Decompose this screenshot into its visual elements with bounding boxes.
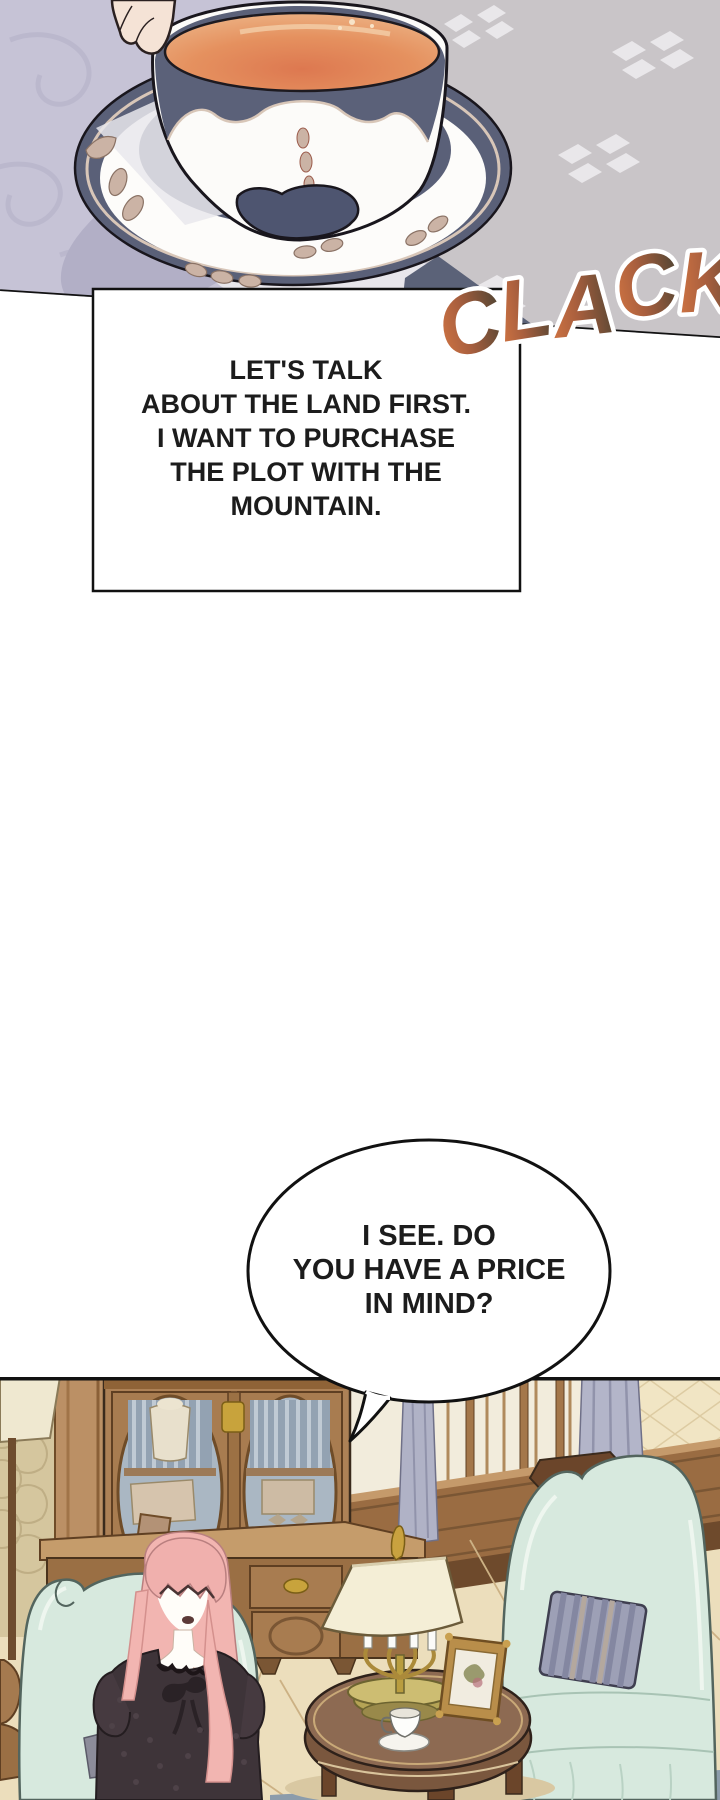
svg-text:LET'S TALK: LET'S TALK <box>230 355 383 385</box>
svg-text:K: K <box>676 232 720 331</box>
svg-text:A: A <box>546 255 620 357</box>
svg-text:ABOUT THE LAND FIRST.: ABOUT THE LAND FIRST. <box>141 389 471 419</box>
svg-text:I WANT TO PURCHASE: I WANT TO PURCHASE <box>157 423 455 453</box>
svg-text:IN MIND?: IN MIND? <box>365 1288 494 1320</box>
svg-text:MOUNTAIN.: MOUNTAIN. <box>231 491 382 521</box>
svg-text:THE PLOT WITH THE: THE PLOT WITH THE <box>170 457 441 487</box>
svg-text:I SEE. DO: I SEE. DO <box>362 1220 496 1252</box>
svg-text:YOU HAVE A PRICE: YOU HAVE A PRICE <box>293 1254 566 1286</box>
